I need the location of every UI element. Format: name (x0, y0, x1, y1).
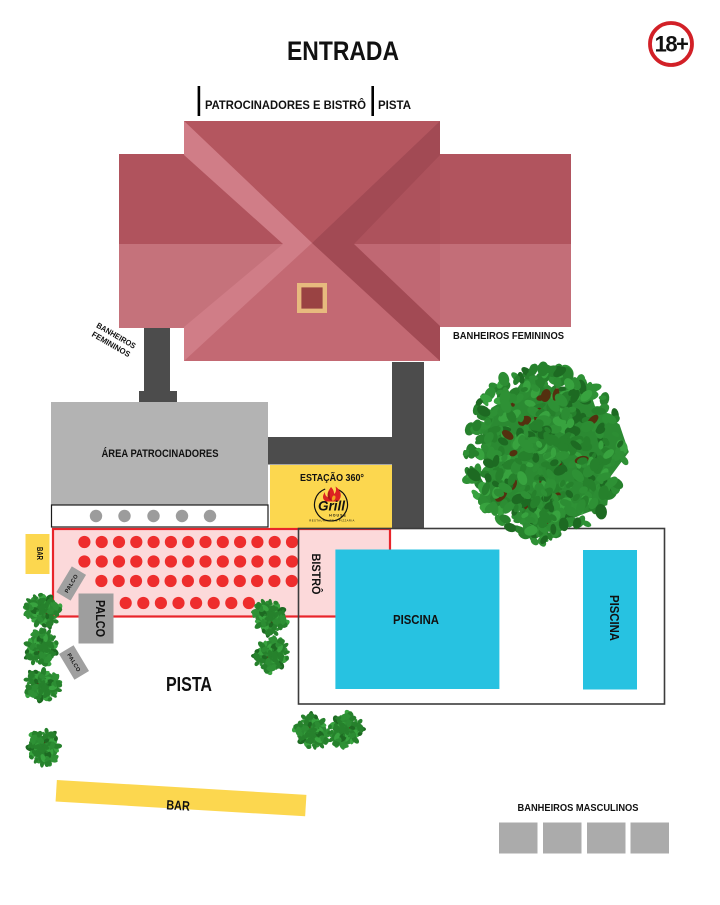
svg-text:PISCINA: PISCINA (607, 595, 621, 641)
svg-text:HOUSE: HOUSE (329, 514, 347, 518)
svg-text:PALCO: PALCO (93, 600, 108, 637)
svg-text:ESTAÇÃO 360°: ESTAÇÃO 360° (300, 471, 364, 484)
svg-text:18+: 18+ (655, 32, 688, 57)
svg-text:ÁREA PATROCINADORES: ÁREA PATROCINADORES (102, 447, 219, 460)
svg-text:PISTA: PISTA (166, 674, 212, 696)
svg-text:ENTRADA: ENTRADA (287, 36, 399, 66)
svg-text:BANHEIROS MASCULINOS: BANHEIROS MASCULINOS (518, 803, 639, 814)
svg-text:PATROCINADORES E BISTRÔ: PATROCINADORES E BISTRÔ (205, 99, 366, 112)
svg-text:PISCINA: PISCINA (393, 613, 439, 627)
svg-text:BISTRÔ: BISTRÔ (309, 554, 324, 595)
svg-text:BAR: BAR (166, 797, 191, 813)
svg-text:Grill: Grill (318, 499, 345, 514)
svg-text:PISTA: PISTA (378, 100, 411, 112)
svg-text:BAR: BAR (35, 547, 44, 560)
svg-text:RESTAURANTE E PIZZARIA: RESTAURANTE E PIZZARIA (309, 519, 354, 523)
svg-text:BANHEIROS FEMININOS: BANHEIROS FEMININOS (453, 331, 564, 342)
